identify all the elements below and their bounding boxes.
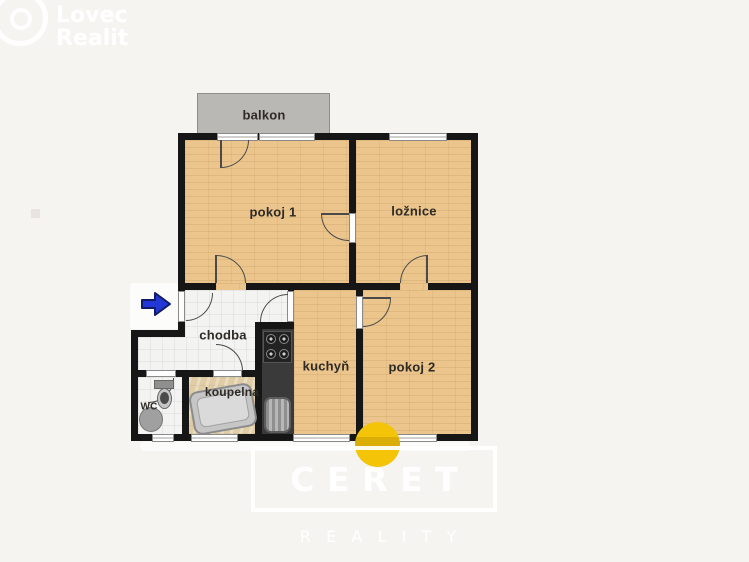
refrigerator-icon [264,397,291,433]
room-label-koupelna: koupelna [205,385,259,399]
window [191,434,238,442]
room-label-balkon: balkon [242,108,285,123]
room-label-kuchyn: kuchyň [303,359,350,374]
wall [178,133,185,291]
wall [182,377,189,434]
stove-icon [263,331,292,363]
stray-mark [31,209,40,218]
window [259,133,315,141]
door-blade [426,255,428,283]
room-label-loznice: ložnice [391,204,436,219]
window [394,434,437,442]
window [389,133,447,141]
wall [131,330,138,441]
toilet-icon [160,392,169,404]
entry-arrow-icon [140,290,172,318]
door-blade [215,255,217,283]
room-label-wc: WC [140,402,157,413]
door-blade [220,140,222,168]
door-leaf [178,291,185,322]
watermark-subtitle: REALITY [285,527,472,546]
door-blade [363,297,391,299]
room-label-pokoj-1: pokoj 1 [250,205,297,220]
logo-text-line2: Realit [56,27,128,50]
room-label-chodba: chodba [199,328,246,343]
door-leaf [287,291,294,322]
floor-plan-image: balkon pokoj 1 ložnice chodba kuchyň pok… [0,0,749,562]
room-label-pokoj-2: pokoj 2 [389,360,436,375]
window [293,434,350,442]
door-opening [216,283,246,290]
wall [131,330,185,337]
watermark-ceret-box: CERET [251,446,497,512]
door-leaf [213,370,242,377]
door-opening [400,283,428,290]
wall [349,140,356,283]
logo-emblem-icon [10,8,32,30]
window [152,434,174,442]
door-leaf [349,213,356,243]
watermark-title: CERET [278,460,470,499]
door-leaf [146,370,176,377]
door-blade [321,213,349,215]
lovec-realit-logo: Lovec Realit [0,0,160,60]
logo-text-line1: Lovec [56,4,127,27]
door-leaf [356,296,363,329]
wall [471,133,478,441]
